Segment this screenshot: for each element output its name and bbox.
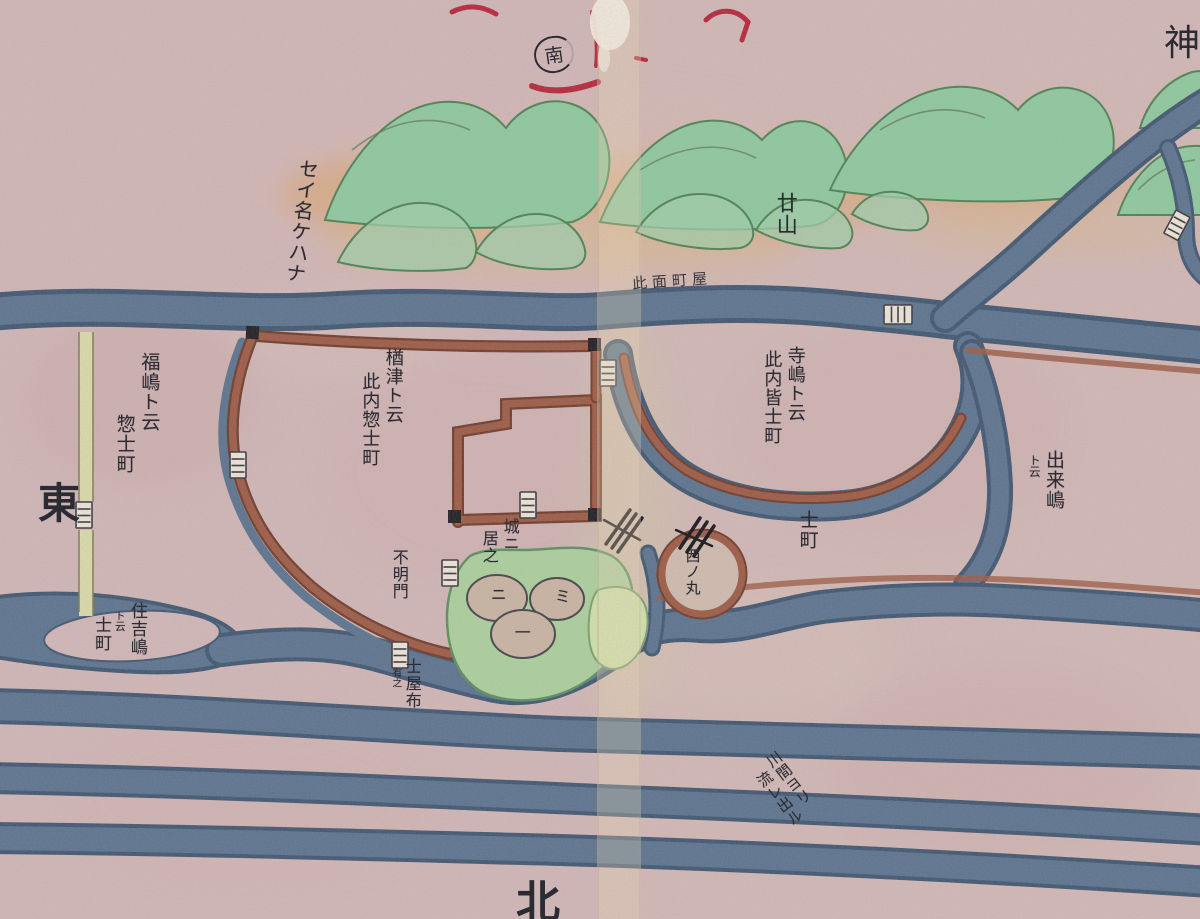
label-fumei-gate: 不明門 [388, 549, 409, 600]
label-mound-ni: ニ [486, 586, 507, 603]
paper-grain [0, 0, 1200, 919]
edge-partial-character: 神 [1164, 14, 1200, 66]
label-shiyashiki: 士屋布 有之 [388, 658, 422, 709]
label-sumiyoshi: 住吉嶋 ト云 士町 [90, 602, 148, 656]
label-hill: 廿山 [772, 192, 799, 236]
label-castle-note: 城ニ 居之 [478, 518, 520, 564]
label-terashima: 寺嶋ト云 此内皆士町 [760, 346, 807, 445]
label-nishinomaru: 西ノ丸 [682, 548, 702, 596]
label-samurai-town-east: 士町 [795, 510, 820, 550]
label-narazu: 楢津ト云 此内惣士町 [358, 348, 405, 467]
compass-north: 北 [516, 866, 560, 919]
antique-map-canvas: セイ名ケハナ 廿山 此面町屋 福嶋ト云 惣士町 楢津ト云 此内惣士町 寺嶋ト云 … [0, 0, 1200, 919]
label-mound-ichi: 一 [510, 624, 531, 641]
compass-east: 東 [38, 470, 80, 531]
label-mound-mi: ミ [550, 588, 571, 605]
map-drawing [0, 0, 1200, 919]
label-fukushima: 福嶋ト云 惣士町 [112, 352, 161, 474]
label-dekijima: 出来嶋 ト云 [1026, 450, 1066, 510]
